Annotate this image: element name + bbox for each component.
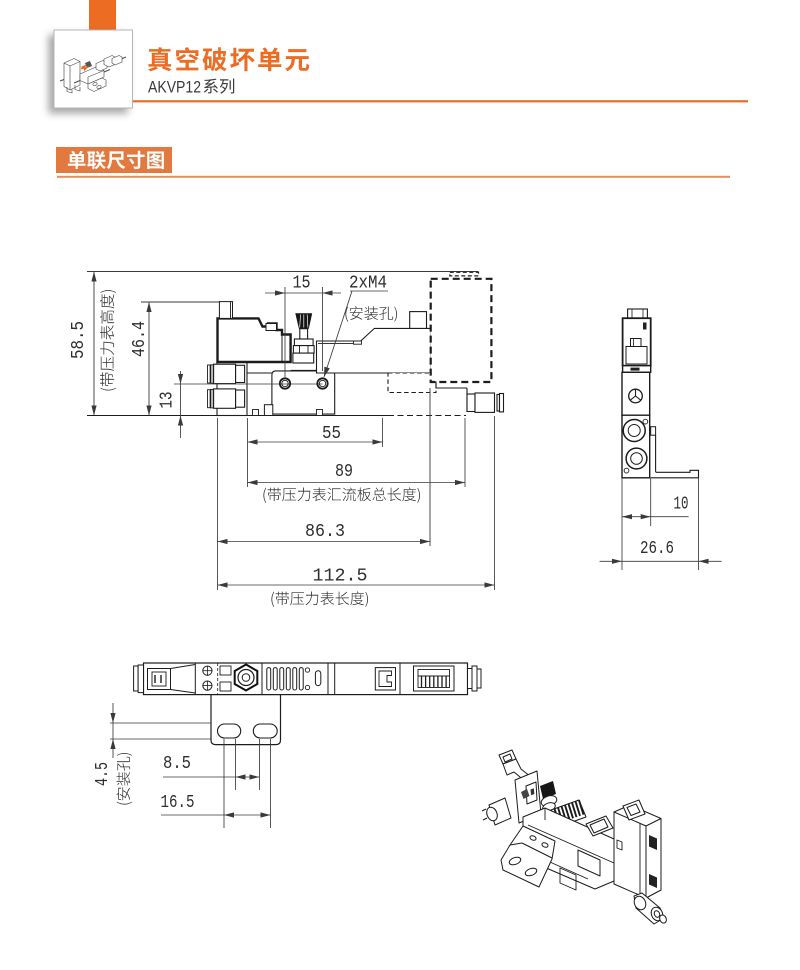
svg-text:86.3: 86.3: [305, 522, 345, 542]
svg-text:4.5: 4.5: [93, 762, 113, 786]
svg-text:89: 89: [335, 462, 353, 482]
svg-text:15: 15: [293, 274, 311, 294]
svg-text:13: 13: [158, 392, 178, 409]
svg-text:58.5: 58.5: [69, 321, 89, 359]
svg-text:10: 10: [674, 495, 689, 515]
svg-text:46.4: 46.4: [130, 321, 150, 357]
svg-text:8.5: 8.5: [163, 754, 191, 774]
svg-text:112.5: 112.5: [313, 567, 368, 587]
svg-text:2xM4: 2xM4: [349, 274, 387, 294]
svg-text:26.6: 26.6: [640, 539, 674, 559]
svg-text:16.5: 16.5: [161, 793, 195, 813]
svg-text:AKVP12: AKVP12: [148, 77, 201, 96]
svg-text:55: 55: [322, 424, 341, 444]
